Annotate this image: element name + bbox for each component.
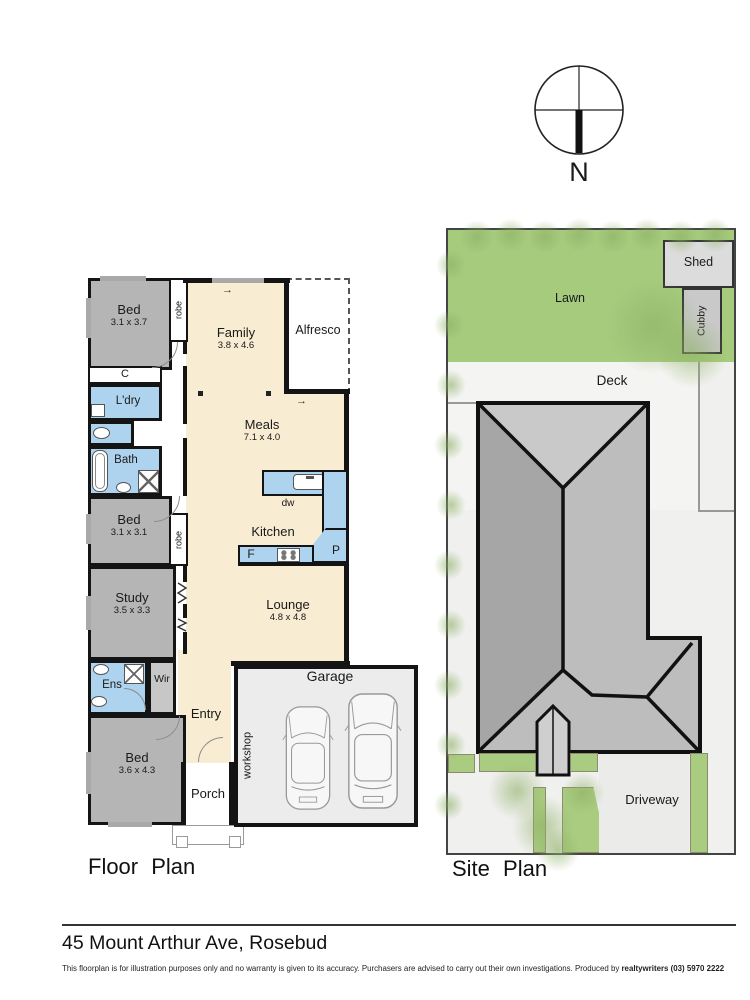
tree-icon <box>656 316 728 388</box>
cooktop-icon <box>277 548 300 562</box>
tree-icon <box>436 730 466 760</box>
tree-icon <box>664 220 698 254</box>
house-roof <box>470 395 710 787</box>
hall-wall-seg2 <box>183 366 187 424</box>
room-wir <box>148 660 176 715</box>
window <box>86 298 91 338</box>
ensuite-shower-icon <box>124 664 144 684</box>
window <box>86 596 91 630</box>
compass-north-label: N <box>563 158 595 186</box>
tree-icon <box>436 490 466 520</box>
room-robe1: robe <box>169 278 188 342</box>
tree-icon <box>436 610 466 640</box>
meals-sliding-door-arrow-icon: → <box>296 396 307 407</box>
tree-icon <box>698 218 732 252</box>
bifold-door-icon <box>176 582 188 604</box>
window <box>86 514 91 544</box>
address-text: 45 Mount Arthur Ave, Rosebud <box>62 932 327 955</box>
room-closet-c <box>88 366 162 384</box>
tree-icon <box>562 772 604 814</box>
window <box>86 752 91 794</box>
garden-bed <box>690 753 708 853</box>
tree-icon <box>436 370 466 400</box>
tree-icon <box>434 430 464 460</box>
tree-icon <box>630 218 664 252</box>
disclaimer-text: This floorplan is for illustration purpo… <box>62 964 738 973</box>
post <box>266 391 271 396</box>
family-sliding-door-arrow-icon: → <box>222 285 233 296</box>
hall-wall-seg3 <box>183 438 187 496</box>
porch-post-left <box>176 836 188 848</box>
tree-icon <box>596 220 630 254</box>
tree-icon <box>528 220 562 254</box>
car-icon <box>344 686 402 816</box>
site-driveway <box>599 754 689 853</box>
alfresco-left-wall <box>284 278 289 394</box>
porch-left-wall <box>181 762 186 826</box>
hall-wall-seg6 <box>183 632 187 654</box>
tree-icon <box>562 218 596 252</box>
porch-label: Porch <box>184 786 232 802</box>
car-icon <box>282 700 334 816</box>
porch-post-right <box>229 836 241 848</box>
room-alfresco <box>286 278 350 394</box>
door-arc <box>152 342 178 368</box>
room-robe2: robe <box>169 513 188 566</box>
tree-icon <box>434 550 464 580</box>
tree-icon <box>434 310 464 340</box>
post <box>198 391 203 396</box>
tree-icon <box>460 220 494 254</box>
island-sink-tap-icon <box>306 476 314 479</box>
laundry-trough-icon <box>91 404 105 417</box>
alfresco-bottom-wall <box>284 389 350 394</box>
family-floor <box>186 280 288 396</box>
footer-divider <box>62 924 736 926</box>
ensuite-toilet-icon <box>91 696 107 707</box>
wc-toilet-icon <box>93 427 110 439</box>
shower-icon <box>138 470 159 493</box>
hall-wall-seg5 <box>183 604 187 618</box>
room-study <box>88 566 176 660</box>
bathtub-icon <box>92 450 108 492</box>
floor-plan-title: Floor Plan <box>88 854 195 880</box>
compass-icon <box>534 62 626 158</box>
tree-icon <box>434 790 464 820</box>
hall-wall-seg1 <box>183 340 187 354</box>
floorplan-page: N Bed 3.1 x 3.7 robe C L'dry Bath Bed 3.… <box>0 0 750 1000</box>
bifold-door-icon <box>176 618 188 632</box>
tree-icon <box>494 218 528 252</box>
disclaimer-body: This floorplan is for illustration purpo… <box>62 964 621 973</box>
hall-wall-seg4 <box>183 566 187 582</box>
garden-bed <box>570 753 598 772</box>
tree-icon <box>434 670 464 700</box>
ensuite-basin-icon <box>93 664 109 675</box>
window <box>100 276 146 281</box>
site-plan-title: Site Plan <box>452 856 547 882</box>
tree-icon <box>436 250 466 280</box>
bath-basin-icon <box>116 482 131 493</box>
family-top-window <box>212 278 264 283</box>
disclaimer-producer: realtywriters (03) 5970 2222 <box>621 964 724 973</box>
kitchen-rear-bench <box>238 545 314 564</box>
window <box>108 822 152 827</box>
